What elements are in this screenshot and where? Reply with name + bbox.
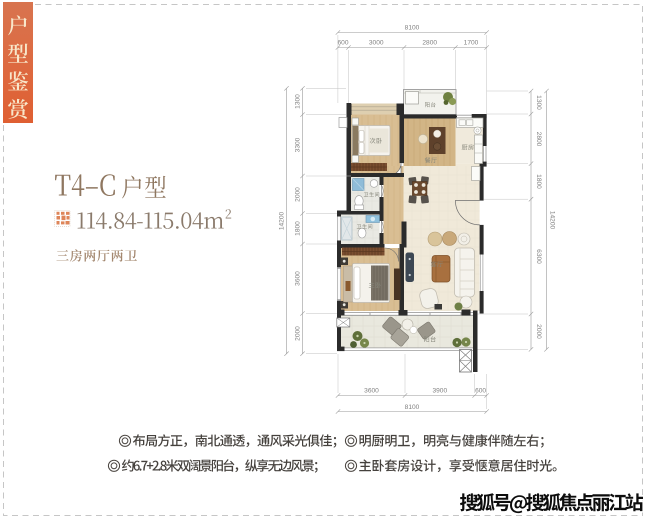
- svg-text:14200: 14200: [549, 211, 556, 230]
- svg-text:3600: 3600: [364, 388, 379, 395]
- svg-text:1300: 1300: [295, 94, 302, 109]
- svg-text:1800: 1800: [535, 174, 542, 189]
- svg-text:8100: 8100: [405, 25, 420, 32]
- svg-text:1800: 1800: [295, 221, 302, 236]
- svg-text:1300: 1300: [535, 95, 542, 110]
- svg-text:600: 600: [337, 40, 348, 47]
- svg-text:2800: 2800: [535, 132, 542, 147]
- svg-text:2000: 2000: [295, 187, 302, 202]
- svg-text:3300: 3300: [295, 137, 302, 152]
- svg-text:2000: 2000: [535, 324, 542, 339]
- svg-text:6300: 6300: [535, 249, 542, 264]
- svg-text:2800: 2800: [422, 40, 437, 47]
- svg-text:1700: 1700: [464, 40, 479, 47]
- svg-text:8100: 8100: [405, 404, 420, 411]
- svg-text:3900: 3900: [432, 388, 447, 395]
- svg-text:3600: 3600: [295, 271, 302, 286]
- svg-text:3000: 3000: [369, 40, 384, 47]
- svg-text:2000: 2000: [295, 326, 302, 341]
- svg-text:600: 600: [475, 388, 486, 395]
- svg-text:14200: 14200: [279, 212, 286, 231]
